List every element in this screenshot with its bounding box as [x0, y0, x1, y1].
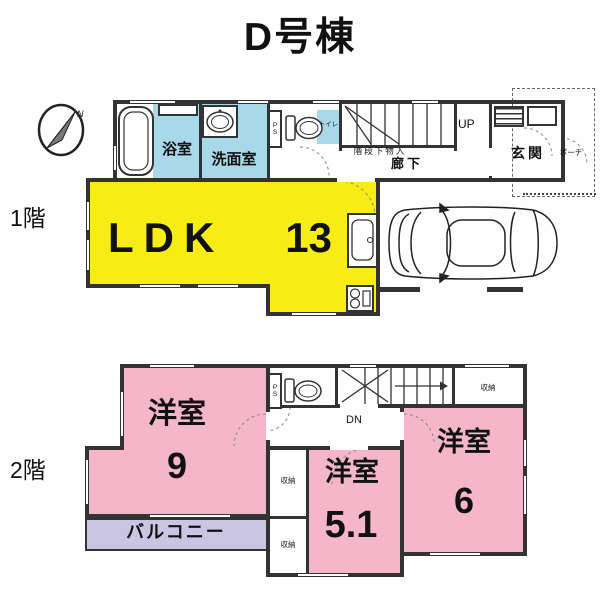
ps-label-1f: PS — [272, 122, 279, 136]
driveway-dotted-line — [523, 193, 596, 195]
door-opening — [337, 178, 375, 182]
stairs-icon-1f — [341, 104, 454, 146]
pipe-shaft-1f: PS — [268, 110, 282, 148]
floorplan-canvas: D号棟 1階 2階 N — [0, 0, 600, 590]
closet-label-2: 収納 — [271, 541, 305, 549]
up-label: UP — [458, 118, 475, 131]
window — [523, 440, 527, 466]
pipe-shaft-2f: PS — [268, 373, 282, 409]
window — [86, 202, 90, 230]
entrance-label: 玄関 — [500, 146, 556, 161]
kitchen-counter — [347, 213, 378, 268]
window — [465, 364, 509, 368]
door-opening — [266, 412, 270, 440]
door-opening — [489, 148, 492, 176]
floor2-label: 2階 — [10, 458, 46, 482]
bath-shelf — [158, 104, 198, 116]
shoe-cabinet — [494, 106, 524, 127]
window — [298, 573, 348, 577]
bathtub-icon — [117, 105, 155, 177]
window — [198, 284, 238, 288]
entry-cabinet — [527, 106, 557, 126]
hallway-label: 廊下 — [385, 157, 429, 171]
toilet-icon-2f — [284, 377, 324, 405]
kitchen-sink-icon — [349, 215, 376, 266]
room6-label: 洋室 — [418, 428, 510, 456]
ldk-size: 13 — [285, 216, 332, 260]
washroom-label: 洗面室 — [200, 152, 268, 168]
stairs-icon-2f — [340, 368, 452, 404]
window — [140, 284, 180, 288]
window — [238, 100, 268, 104]
dn-label: DN — [346, 415, 362, 427]
car-icon — [383, 194, 563, 292]
closet-label-1: 収納 — [271, 477, 305, 485]
wall — [561, 100, 565, 182]
window — [313, 100, 339, 104]
wall — [86, 178, 90, 288]
ps-label-2f: PS — [272, 384, 279, 398]
room6-size: 6 — [428, 482, 500, 520]
bath-label: 浴室 — [153, 142, 201, 158]
door-opening — [340, 404, 378, 408]
under-stairs-label: 階段下物入 — [340, 147, 420, 156]
porch-label: ポーチ — [550, 149, 592, 157]
stove-icon — [346, 285, 374, 312]
window — [523, 476, 527, 514]
room51-label: 洋室 — [306, 458, 398, 486]
window — [430, 552, 480, 556]
window — [86, 240, 90, 270]
closet-label-top: 収納 — [453, 384, 523, 392]
balcony-door — [150, 514, 230, 518]
wall — [335, 368, 338, 408]
door-opening — [330, 446, 368, 450]
plan-title: D号棟 — [0, 18, 600, 59]
wall — [85, 446, 124, 450]
wall — [86, 178, 565, 182]
room9-label: 洋室 — [117, 399, 237, 429]
room51-size: 5.1 — [301, 506, 401, 546]
ldk-name: LDK — [108, 216, 224, 260]
ldk-label: LDK 13 — [108, 212, 332, 264]
door-swing-arcs — [0, 0, 600, 590]
toilet-label-1f: トイレ — [317, 122, 340, 129]
door-opening — [400, 412, 404, 440]
floor1-label: 1階 — [10, 206, 46, 230]
window — [150, 364, 194, 368]
wall — [454, 103, 457, 151]
compass-north-label: N — [77, 109, 84, 119]
window — [85, 460, 89, 504]
room9-size: 9 — [137, 447, 217, 485]
window — [292, 312, 336, 316]
compass-icon: N — [34, 98, 92, 160]
vanity-counter — [202, 105, 238, 138]
balcony-label: バルコニー — [92, 523, 260, 542]
sink-icon — [204, 107, 236, 136]
